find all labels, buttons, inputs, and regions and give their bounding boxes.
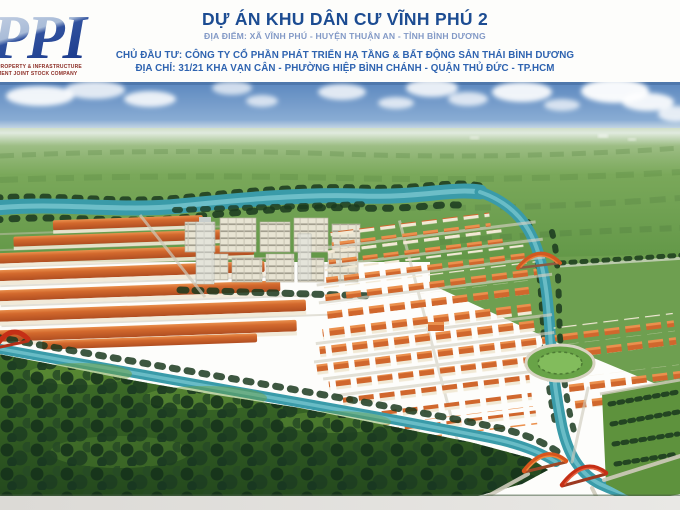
- header: PPI PROPERTY & INFRASTRUCTURE MENT JOINT…: [0, 0, 680, 82]
- logo-tagline-1: PROPERTY & INFRASTRUCTURE: [0, 64, 82, 70]
- pavilion: [428, 322, 444, 331]
- address-line: ĐỊA CHỈ: 31/21 KHA VẠN CÂN - PHƯỜNG HIỆP…: [110, 63, 580, 74]
- project-location: ĐỊA ĐIỂM: XÃ VĨNH PHÚ - HUYỆN THUẬN AN -…: [110, 31, 580, 41]
- logo-acronym: PPI: [0, 4, 89, 72]
- logo-tagline-2: MENT JOINT STOCK COMPANY: [0, 71, 78, 77]
- investor-line: CHỦ ĐẦU TƯ: CÔNG TY CỔ PHẦN PHÁT TRIỂN H…: [110, 50, 580, 61]
- project-title: DỰ ÁN KHU DÂN CƯ VĨNH PHÚ 2: [110, 9, 580, 30]
- ppi-logo: PPI PROPERTY & INFRASTRUCTURE MENT JOINT…: [0, 2, 104, 80]
- bottom-strip: [0, 495, 680, 510]
- oval-park: [526, 345, 594, 381]
- park-bottom-right: [600, 378, 680, 502]
- project-poster: PPI PROPERTY & INFRASTRUCTURE MENT JOINT…: [0, 0, 680, 510]
- header-text-block: DỰ ÁN KHU DÂN CƯ VĨNH PHÚ 2 ĐỊA ĐIỂM: XÃ…: [110, 0, 580, 82]
- aerial-rendering: [0, 82, 680, 510]
